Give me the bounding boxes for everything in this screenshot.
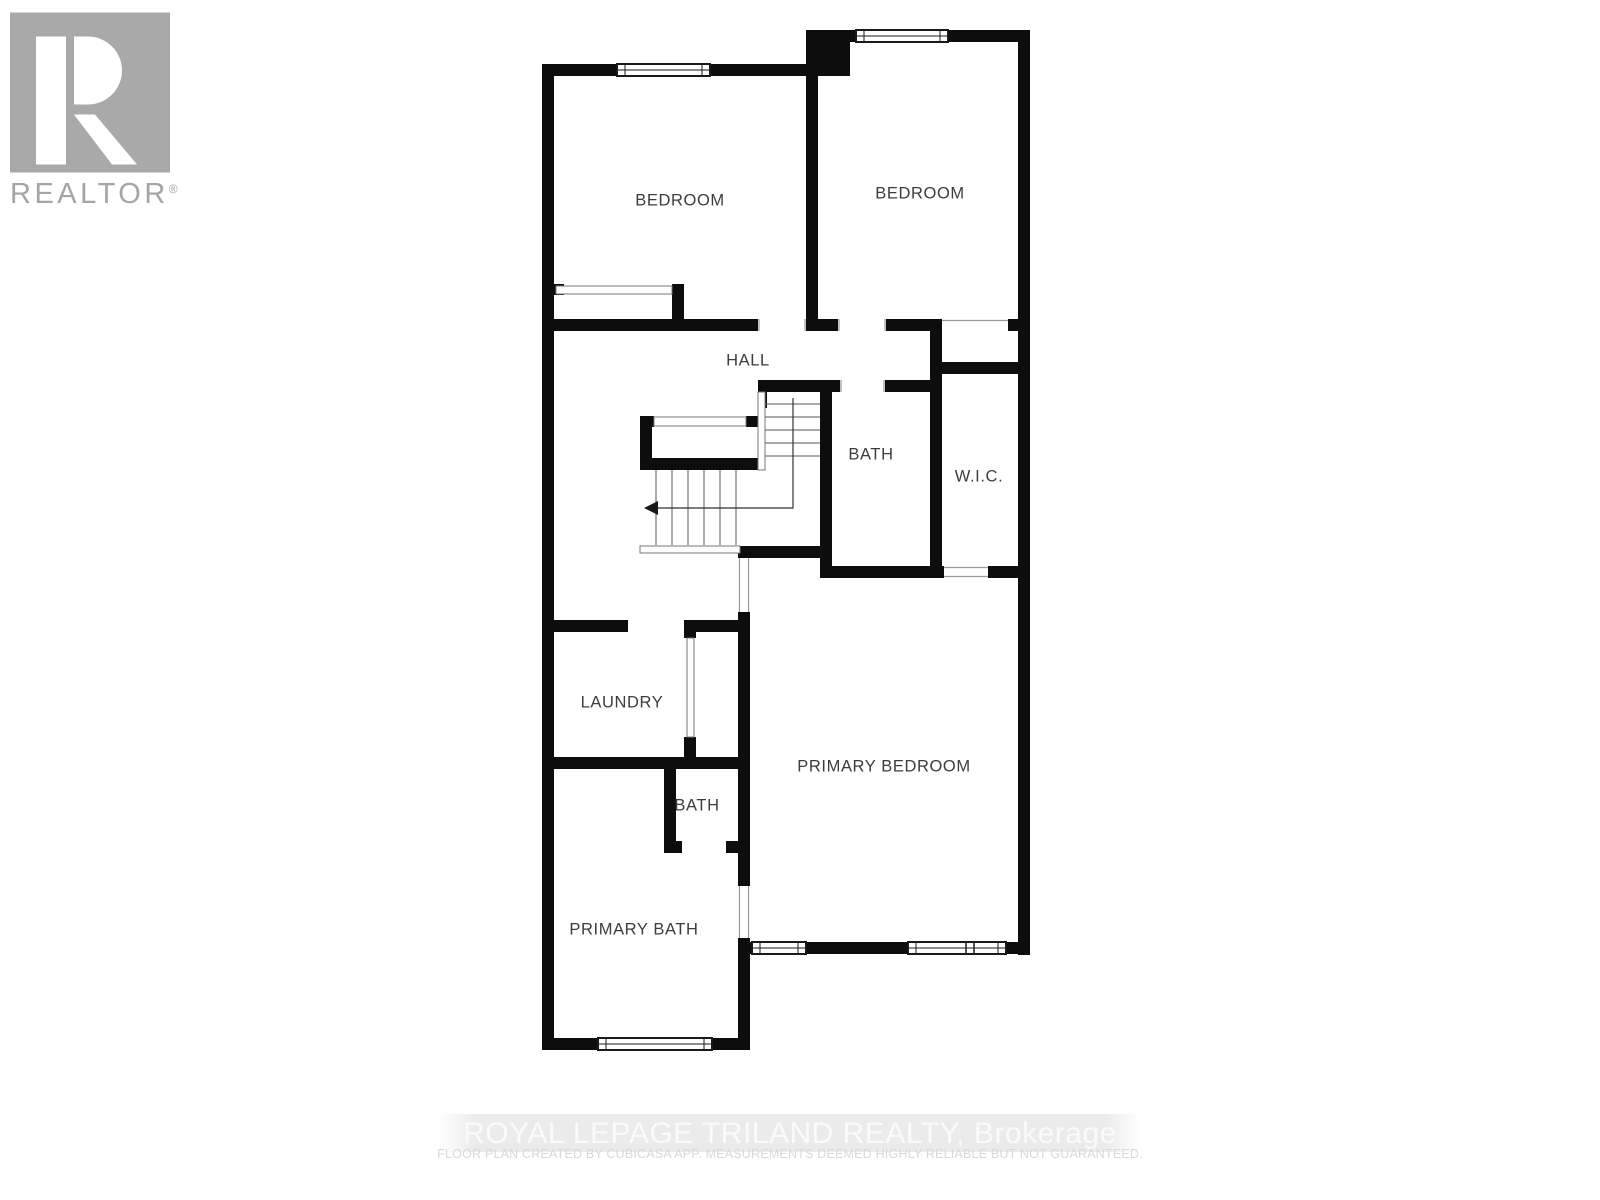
floor-plan-drawing	[0, 0, 1600, 1200]
floor-plan-page: REALTOR®	[0, 0, 1600, 1200]
closet-lines	[556, 286, 694, 737]
door-openings	[740, 319, 1009, 938]
hall-closet-door-line	[687, 638, 694, 737]
room-label-primary-bath: PRIMARY BATH	[569, 921, 698, 940]
stair-landing-edge	[640, 546, 740, 553]
stair-direction-line	[652, 398, 793, 508]
window-primary-bedroom-a	[752, 942, 806, 954]
room-label-primary-bedroom: PRIMARY BEDROOM	[797, 758, 970, 777]
stair-direction-arrow-icon	[644, 501, 658, 515]
room-label-bedroom-right: BEDROOM	[875, 185, 964, 204]
room-label-bath-upper: BATH	[848, 446, 893, 465]
room-label-laundry: LAUNDRY	[581, 694, 664, 713]
stair-rail-line	[758, 392, 765, 470]
disclaimer-text: FLOOR PLAN CREATED BY CUBICASA APP. MEAS…	[410, 1147, 1170, 1161]
window-primary-bedroom-b	[908, 942, 1006, 954]
room-label-wic: W.I.C.	[955, 468, 1004, 487]
room-label-bedroom-left: BEDROOM	[635, 192, 724, 211]
staircase-icon	[640, 392, 820, 553]
windows	[598, 30, 1006, 1050]
window-bedroom-right	[856, 30, 948, 42]
bedroom-closet-door-line	[556, 286, 672, 294]
window-bedroom-left	[617, 64, 710, 76]
walls	[542, 30, 1030, 1050]
stairwell-railing-line	[654, 417, 746, 426]
window-primary-bath	[598, 1038, 712, 1050]
room-label-hall: HALL	[726, 352, 770, 371]
room-label-bath-small: BATH	[674, 797, 719, 816]
